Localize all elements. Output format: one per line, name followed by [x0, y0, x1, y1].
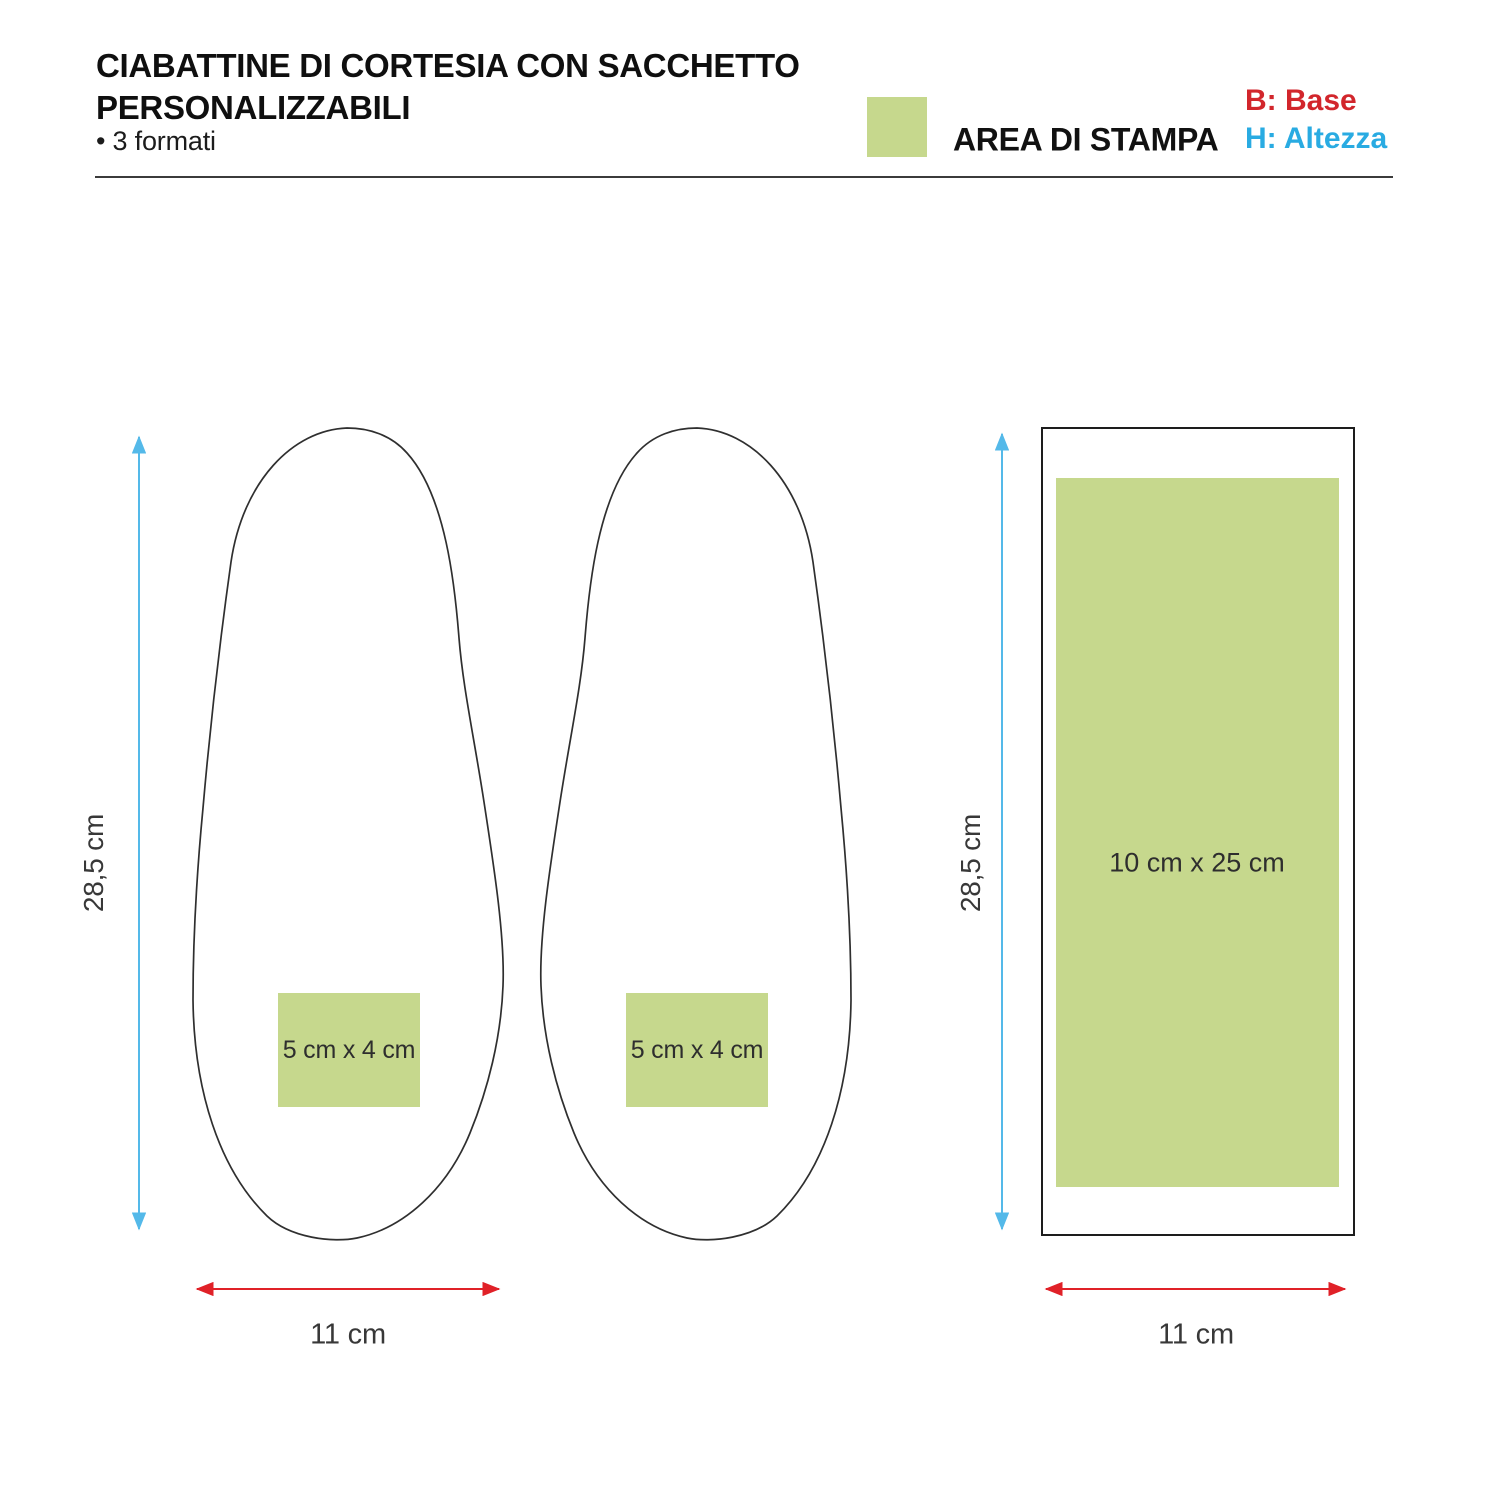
print-area-swatch — [867, 97, 927, 157]
slipper-outline-right — [541, 428, 851, 1240]
print-area-bag-label: 10 cm x 25 cm — [1109, 848, 1285, 879]
slippers-height-label: 28,5 cm — [78, 814, 110, 912]
slipper-width-label: 11 cm — [310, 1319, 386, 1352]
spec-sheet: CIABATTINE DI CORTESIA CON SACCHETTO PER… — [0, 0, 1500, 1500]
print-area-bag — [1056, 478, 1339, 1187]
page-title: CIABATTINE DI CORTESIA CON SACCHETTO PER… — [96, 45, 800, 129]
print-area-slipper-right: 5 cm x 4 cm — [626, 993, 768, 1107]
bag-width-label: 11 cm — [1158, 1319, 1234, 1352]
header-divider — [95, 176, 1393, 178]
formats-note: • 3 formati — [96, 126, 216, 157]
print-area-slipper-left: 5 cm x 4 cm — [278, 993, 420, 1107]
page-title-line2: PERSONALIZZABILI — [96, 87, 800, 129]
print-area-slipper-left-label: 5 cm x 4 cm — [283, 1036, 416, 1065]
legend-height-label: H: Altezza — [1245, 122, 1387, 156]
legend-base-label: B: Base — [1245, 84, 1357, 118]
page-title-line1: CIABATTINE DI CORTESIA CON SACCHETTO — [96, 45, 800, 87]
bag-height-label: 28,5 cm — [955, 814, 987, 912]
print-area-slipper-right-label: 5 cm x 4 cm — [631, 1036, 764, 1065]
legend-area-label: AREA DI STAMPA — [953, 122, 1218, 159]
slipper-outline-left — [193, 428, 503, 1240]
